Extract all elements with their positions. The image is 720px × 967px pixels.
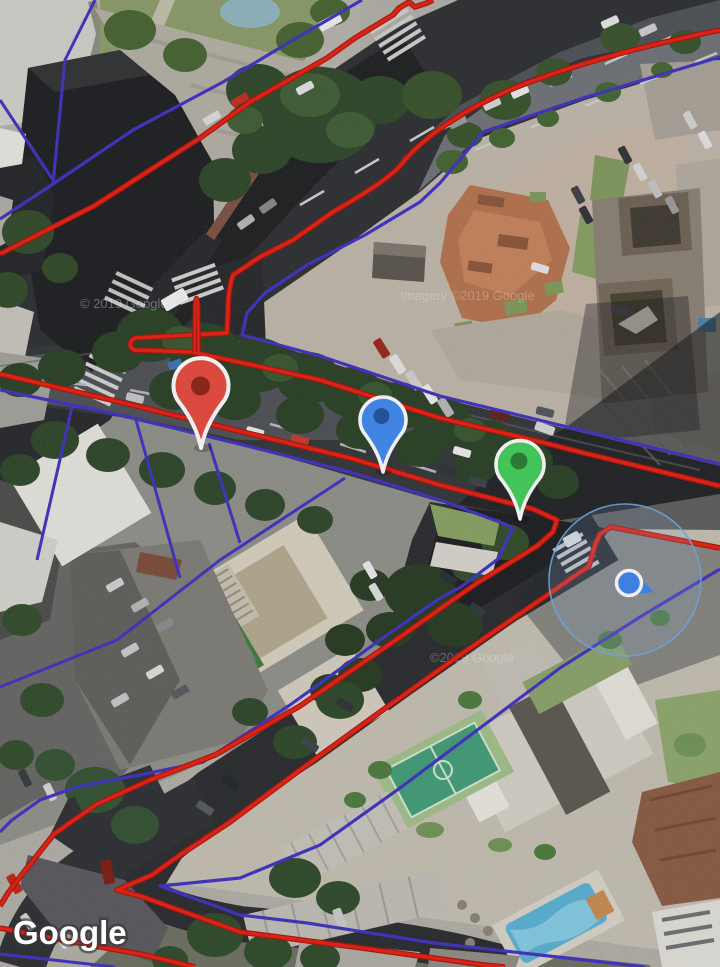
svg-text:Google: Google	[13, 914, 127, 951]
